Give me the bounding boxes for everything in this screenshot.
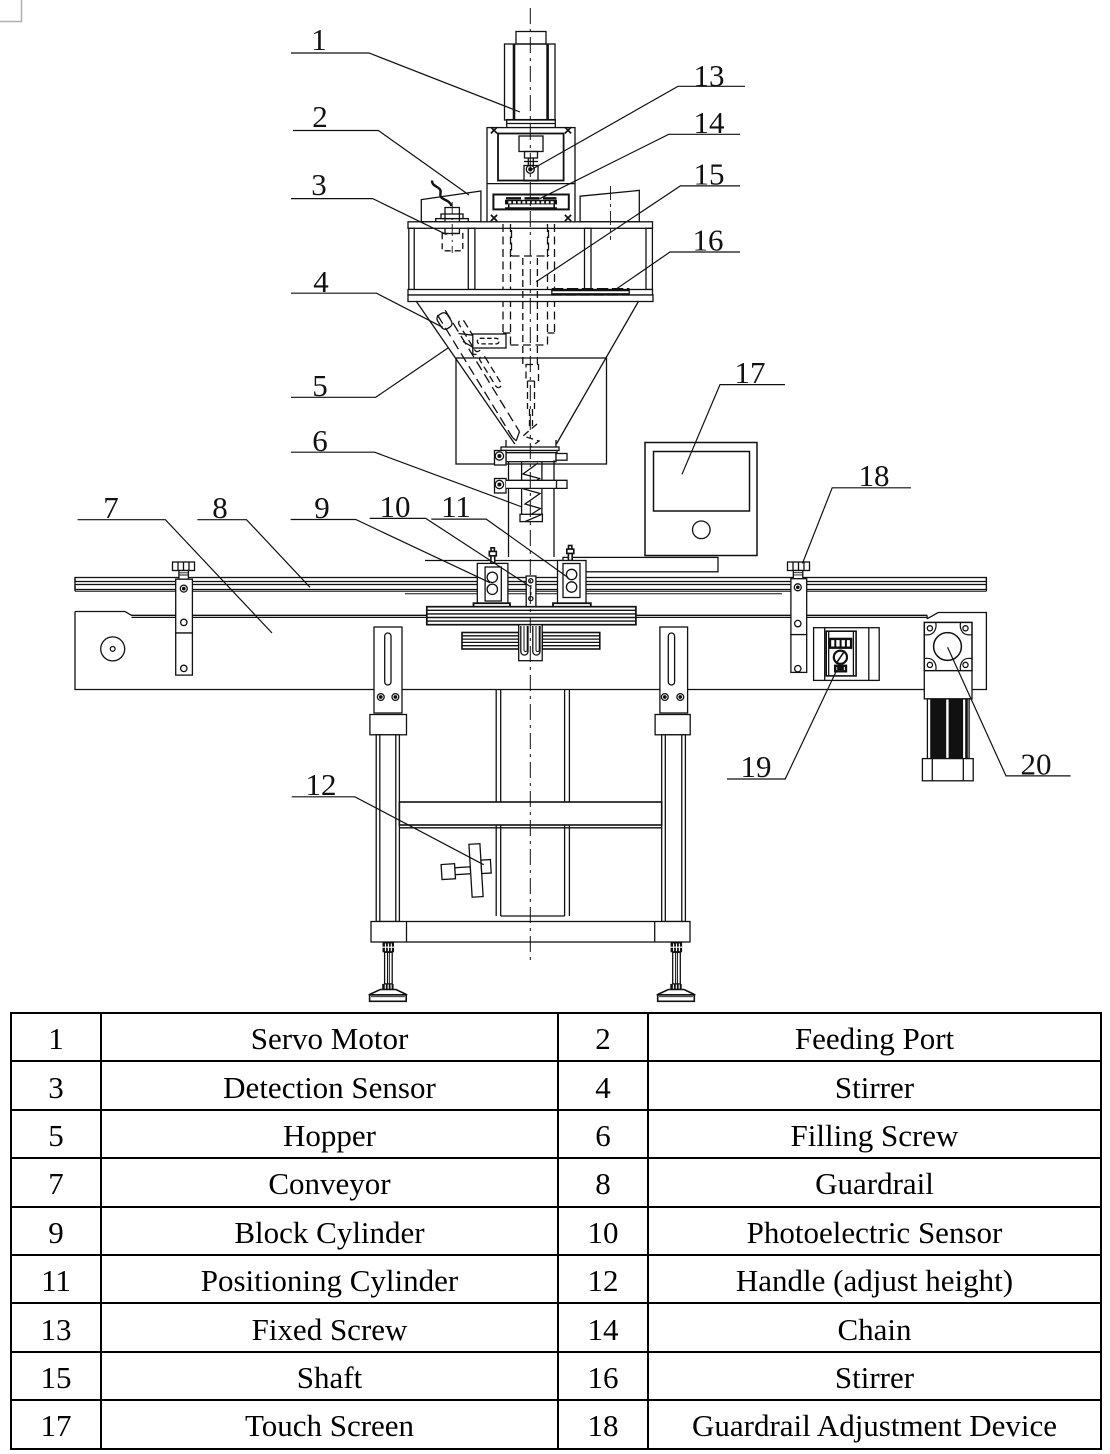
- svg-text:12: 12: [306, 767, 337, 802]
- svg-text:14: 14: [694, 105, 726, 140]
- svg-text:7: 7: [103, 490, 119, 525]
- svg-text:16: 16: [693, 223, 724, 258]
- svg-text:9: 9: [314, 490, 330, 525]
- svg-text:11: 11: [441, 489, 471, 524]
- svg-text:17: 17: [735, 355, 766, 390]
- svg-text:18: 18: [859, 458, 890, 493]
- svg-text:6: 6: [312, 423, 328, 458]
- svg-text:20: 20: [1021, 747, 1052, 782]
- svg-text:13: 13: [694, 58, 725, 93]
- svg-text:4: 4: [313, 264, 329, 299]
- svg-text:8: 8: [212, 490, 228, 525]
- svg-text:5: 5: [312, 368, 328, 403]
- svg-text:19: 19: [741, 749, 772, 784]
- svg-text:3: 3: [311, 167, 327, 202]
- svg-text:2: 2: [312, 99, 328, 134]
- svg-text:15: 15: [694, 157, 725, 192]
- svg-text:10: 10: [380, 489, 411, 524]
- svg-text:1: 1: [311, 22, 327, 57]
